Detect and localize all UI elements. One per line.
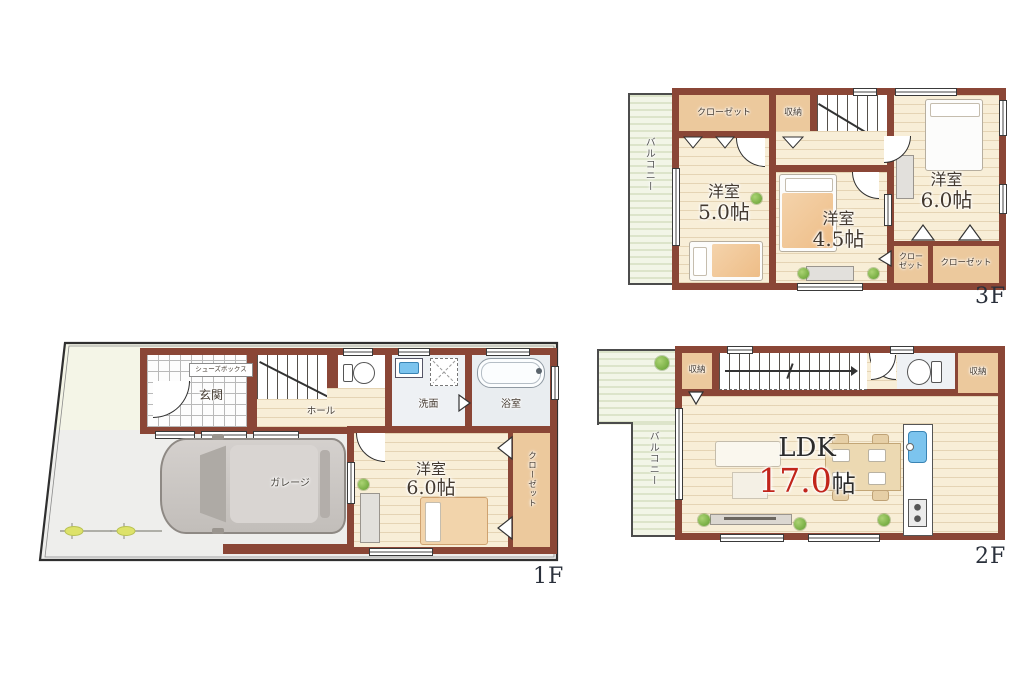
shoes-box: シューズボックス: [189, 363, 253, 377]
room45-name: 洋室: [790, 210, 887, 228]
kitchen-faucet: [906, 443, 914, 451]
window: [853, 88, 877, 96]
closet-small-label-3f: クロー ゼット: [894, 253, 928, 271]
entrance-label: 玄関: [175, 389, 247, 402]
window: [672, 168, 680, 246]
kitchen-stove: [908, 499, 927, 527]
window: [808, 534, 880, 542]
window: [347, 462, 355, 504]
closet-top-label-3f: クローゼット: [679, 108, 769, 118]
window: [727, 346, 753, 354]
window: [895, 88, 957, 96]
closet-small-line2: ゼット: [894, 262, 928, 271]
room45-size: 4.5帖: [790, 228, 887, 250]
closet-top-3f: クローゼット: [679, 95, 769, 131]
toilet-room-1f: [338, 355, 390, 388]
tv-icon: [724, 517, 776, 520]
ldk-unit: 帖: [832, 470, 856, 498]
storage-right-2f: 収納: [958, 353, 998, 393]
house-1f-top: シューズボックス 玄関 ホール: [140, 348, 557, 434]
floor-plan-3f: バルコニー クローゼット 収納 洋室 5.0帖: [628, 86, 1013, 321]
ldk-label: LDK 17.0帖: [737, 434, 877, 500]
storage-label-3f: 収納: [776, 108, 810, 118]
closet-fold-door-icon: [907, 224, 992, 241]
room6-1f-label: 洋室 6.0帖: [354, 461, 508, 499]
closet-door-icon: [878, 250, 892, 267]
washroom-label: 洗面: [392, 399, 465, 410]
house-2f: 収納 収納: [675, 346, 1005, 540]
plant-icon: [698, 514, 710, 526]
tv-board-icon: [710, 514, 792, 525]
garage-label: ガレージ: [248, 478, 332, 489]
room-6-1f: 洋室 6.0帖: [354, 433, 508, 547]
closet-1f-label: クローゼット: [526, 451, 536, 508]
closet-small-3f: クロー ゼット: [894, 246, 928, 283]
balcony-label-3f: バルコニー: [643, 137, 654, 192]
balcony-2f-lower: バルコニー: [631, 423, 679, 537]
window: [884, 194, 892, 226]
storage-right-label-2f: 収納: [958, 368, 998, 378]
toilet-tank: [931, 361, 942, 383]
house-1f-bedroom: 洋室 6.0帖 クローゼット: [347, 426, 557, 554]
window: [551, 366, 559, 400]
floor-label-2f: 2F: [975, 544, 1006, 569]
floor-label-1f: 1F: [533, 564, 564, 589]
garden-plant-icon: [110, 521, 162, 541]
floor-plan-2f: バルコニー 収納 収納: [595, 344, 1015, 579]
floor-plan-page: バルコニー クローゼット 収納 洋室 5.0帖: [0, 0, 1024, 683]
toilet-icon: [353, 362, 375, 384]
closet-br-label-3f: クローゼット: [933, 259, 999, 269]
toilet-icon: [907, 359, 931, 385]
room6-1f-name: 洋室: [354, 461, 508, 478]
storage-3f: 収納: [776, 95, 810, 131]
garage-wall: [223, 544, 353, 554]
floor-label-3f: 3F: [975, 284, 1006, 309]
bathroom-1f: 浴室: [472, 355, 550, 427]
bath-door-icon: [458, 394, 471, 412]
stairs-1f: [257, 355, 327, 399]
closet-hanger-icon: [682, 136, 746, 149]
window: [999, 100, 1007, 136]
washbasin-icon: [395, 358, 423, 378]
stairs-arrowhead: [851, 366, 858, 376]
ldk-name: LDK: [737, 434, 877, 463]
house-3f: クローゼット 収納 洋室 5.0帖: [672, 88, 1006, 290]
plant-icon: [794, 518, 806, 530]
stairs-2f: [719, 353, 867, 390]
room45-label-3f: 洋室 4.5帖: [790, 210, 887, 250]
plant-icon: [878, 514, 890, 526]
toilet-tank: [343, 364, 353, 382]
floor-plan-1f: シューズボックス 玄関 ホール: [35, 338, 565, 598]
closet-hanger-icon: [778, 136, 808, 149]
window: [797, 283, 863, 291]
room-6-3f: 洋室 6.0帖: [894, 95, 999, 241]
balcony-step-line: [597, 422, 633, 424]
window: [999, 184, 1007, 214]
closet-1f: クローゼット: [513, 433, 550, 547]
bathtub-icon: [477, 358, 545, 388]
ldk-size: 17.0: [758, 461, 831, 500]
window: [890, 346, 914, 354]
balcony-label-2f: バルコニー: [647, 431, 658, 486]
window: [343, 348, 373, 356]
entrance-1f: シューズボックス 玄関: [147, 355, 247, 427]
door-arc: [356, 433, 385, 462]
room6-1f-size: 6.0帖: [354, 478, 508, 499]
window: [486, 348, 530, 356]
closet-br-3f: クローゼット: [933, 246, 999, 283]
storage-left-label-2f: 収納: [682, 366, 712, 376]
closet-fold-door-icon: [497, 516, 513, 540]
balcony-door-icon: [687, 391, 705, 405]
hall-1f: ホール: [257, 399, 385, 427]
closet-fold-door-icon: [497, 436, 513, 460]
kitchen-counter: [903, 424, 933, 536]
plant-icon: [358, 479, 369, 490]
garden-plant-icon: [60, 521, 112, 541]
window: [675, 408, 683, 500]
corridor-1f: [327, 388, 385, 402]
window: [398, 348, 430, 356]
car-icon: ガレージ: [160, 438, 342, 530]
washer-space-icon: [430, 358, 458, 386]
stairs-arrow-1f: [259, 361, 327, 397]
toilet-room-2f: [897, 353, 955, 389]
balcony-3f: バルコニー: [628, 93, 676, 285]
ldk-room-2f: LDK 17.0帖: [682, 396, 998, 533]
plant-icon: [655, 356, 669, 370]
storage-left-2f: 収納: [682, 353, 712, 389]
window: [720, 534, 784, 542]
washroom-1f: 洗面: [392, 355, 465, 427]
hall-label: ホール: [257, 407, 385, 418]
room5-size: 5.0帖: [679, 201, 769, 223]
shoes-box-label: シューズボックス: [190, 366, 252, 373]
bathroom-label: 浴室: [472, 399, 550, 410]
window: [369, 548, 433, 556]
